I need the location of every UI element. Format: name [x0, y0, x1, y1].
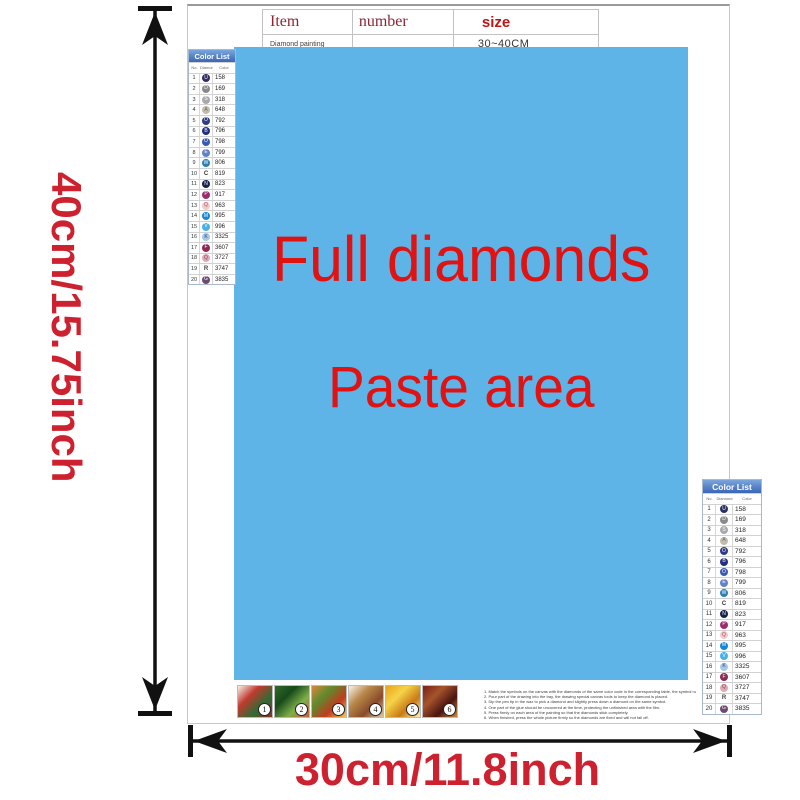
- thumbnail-image: 5: [385, 685, 421, 718]
- diamond-symbol-icon: U: [720, 505, 728, 513]
- diamond-symbol-icon: S: [202, 96, 210, 104]
- diamond-symbol-cell: Q: [716, 683, 733, 693]
- diamond-symbol-cell: Q: [200, 254, 213, 264]
- color-number: 4: [703, 536, 716, 546]
- color-number: 14: [189, 211, 200, 221]
- diamond-symbol-icon: B: [720, 558, 728, 566]
- color-list-row: 6B796: [703, 556, 761, 567]
- diamond-symbol-icon: Q: [202, 254, 210, 262]
- color-list-row: 16K3325: [703, 661, 761, 672]
- thumbnail-number-badge: 3: [332, 703, 345, 716]
- color-list-title: Color List: [703, 480, 761, 493]
- color-number: 12: [703, 620, 716, 630]
- color-list-row: 8E799: [703, 577, 761, 588]
- color-list-row: 3S318: [703, 525, 761, 536]
- diamond-symbol-icon: C: [720, 600, 728, 608]
- diamond-symbol-cell: D: [200, 84, 213, 94]
- color-code: 3607: [213, 245, 235, 251]
- diamond-symbol-icon: P: [720, 621, 728, 629]
- diamond-symbol-icon: A: [720, 537, 728, 545]
- diamond-symbol-icon: E: [202, 149, 210, 157]
- color-number: 9: [189, 158, 200, 168]
- diamond-symbol-cell: V: [200, 222, 213, 232]
- diamond-symbol-icon: M: [202, 212, 210, 220]
- thumbnail-image: 1: [237, 685, 273, 718]
- color-code: 819: [213, 171, 235, 177]
- color-list-row: 20G3835: [189, 274, 235, 285]
- color-number: 11: [189, 180, 200, 190]
- diamond-symbol-icon: D: [202, 85, 210, 93]
- diamond-symbol-cell: W: [716, 589, 733, 599]
- diamond-symbol-icon: R: [202, 265, 210, 273]
- color-number: 19: [703, 694, 716, 704]
- instruction-line: 6. When finished, press the whole pictur…: [484, 715, 696, 720]
- thumbnail-number-badge: 1: [258, 703, 271, 716]
- color-code: 796: [213, 128, 235, 134]
- color-list-header-row: No.DiamondColor: [703, 493, 761, 504]
- color-code: 799: [213, 150, 235, 156]
- color-number: 2: [703, 515, 716, 525]
- diamond-symbol-icon: D: [720, 516, 728, 524]
- color-code: 798: [733, 569, 761, 576]
- color-column-header: Color: [213, 65, 235, 70]
- color-code: 648: [733, 537, 761, 544]
- diamond-symbol-cell: M: [200, 211, 213, 221]
- diamond-symbol-cell: G: [716, 704, 733, 714]
- color-code: 3747: [733, 695, 761, 702]
- color-list-row: 15V996: [703, 651, 761, 662]
- diamond-symbol-cell: K: [716, 662, 733, 672]
- color-list-row: 7O798: [189, 136, 235, 147]
- color-code: 792: [213, 118, 235, 124]
- diamond-symbol-icon: G: [202, 276, 210, 284]
- color-code: 798: [213, 139, 235, 145]
- diamond-symbol-icon: O: [202, 117, 210, 125]
- diamond-symbol-icon: B: [202, 127, 210, 135]
- diamond-symbol-cell: R: [200, 264, 213, 274]
- diamond-symbol-icon: F: [720, 673, 728, 681]
- color-list-row: 4A648: [189, 104, 235, 115]
- diamond-symbol-cell: Q: [716, 631, 733, 641]
- diamond-symbol-cell: S: [716, 526, 733, 536]
- color-list-row: 18Q3727: [703, 682, 761, 693]
- color-list-left: Color ListNo.DiamondColor1U1582D1693S318…: [188, 49, 236, 285]
- color-code: 169: [733, 516, 761, 523]
- color-code: 158: [213, 75, 235, 81]
- color-list-row: 11N823: [703, 609, 761, 620]
- diamond-symbol-icon: W: [720, 589, 728, 597]
- vertical-dimension-arrow: [137, 5, 173, 717]
- diamond-symbol-cell: D: [716, 515, 733, 525]
- color-code: 158: [733, 506, 761, 513]
- color-list-header-row: No.DiamondColor: [189, 62, 235, 73]
- color-code: 169: [213, 86, 235, 92]
- color-number: 17: [189, 243, 200, 253]
- color-number: 2: [189, 84, 200, 94]
- diamond-symbol-icon: N: [202, 180, 210, 188]
- color-number: 8: [703, 578, 716, 588]
- color-list-row: 12P917: [703, 619, 761, 630]
- color-code: 806: [733, 590, 761, 597]
- diamond-symbol-cell: O: [200, 116, 213, 126]
- color-code: 819: [733, 600, 761, 607]
- color-list-row: 9W806: [189, 157, 235, 168]
- color-number: 10: [703, 599, 716, 609]
- diamond-symbol-cell: P: [200, 190, 213, 200]
- color-number: 5: [189, 116, 200, 126]
- item-header-cell: Item: [263, 10, 353, 35]
- thumbnail-image: 3: [311, 685, 347, 718]
- color-number: 5: [703, 547, 716, 557]
- no-column-header: No.: [189, 65, 200, 70]
- color-code: 823: [213, 181, 235, 187]
- color-number: 15: [189, 222, 200, 232]
- color-code: 792: [733, 548, 761, 555]
- color-code: 648: [213, 107, 235, 113]
- diamond-symbol-cell: O: [716, 568, 733, 578]
- color-number: 16: [703, 662, 716, 672]
- diamond-symbol-cell: F: [200, 243, 213, 253]
- color-number: 6: [703, 557, 716, 567]
- size-header-cell: size: [453, 10, 598, 35]
- diamond-symbol-cell: K: [200, 233, 213, 243]
- color-number: 18: [703, 683, 716, 693]
- color-code: 3325: [733, 663, 761, 670]
- color-list-row: 5O792: [703, 546, 761, 557]
- thumbnail-number-badge: 5: [406, 703, 419, 716]
- color-list-row: 11N823: [189, 179, 235, 190]
- color-column-header: Color: [733, 496, 761, 501]
- diamond-symbol-icon: R: [720, 694, 728, 702]
- diamond-symbol-icon: V: [720, 652, 728, 660]
- color-list-row: 14M995: [703, 640, 761, 651]
- paste-area-subtitle: Paste area: [328, 354, 594, 421]
- thumbnail-number-badge: 6: [443, 703, 456, 716]
- diamond-symbol-icon: G: [720, 705, 728, 713]
- diamond-symbol-icon: F: [202, 244, 210, 252]
- width-dimension-label: 30cm/11.8inch: [250, 744, 645, 796]
- color-code: 806: [213, 160, 235, 166]
- diamond-symbol-cell: E: [200, 148, 213, 158]
- color-list-row: 13Q963: [703, 630, 761, 641]
- diamond-symbol-cell: G: [200, 275, 213, 285]
- color-code: 963: [733, 632, 761, 639]
- color-list-right: Color ListNo.DiamondColor1U1582D1693S318…: [702, 479, 762, 715]
- color-number: 12: [189, 190, 200, 200]
- number-header-cell: number: [352, 10, 453, 35]
- diamond-symbol-icon: N: [720, 610, 728, 618]
- color-code: 995: [213, 213, 235, 219]
- color-list-row: 6B796: [189, 126, 235, 137]
- diamond-symbol-cell: A: [716, 536, 733, 546]
- diamond-column-header: Diamond: [200, 65, 213, 70]
- color-list-row: 16K3325: [189, 232, 235, 243]
- instructions-text: 1. Match the symbols on the canvas with …: [484, 689, 696, 720]
- color-list-row: 19R3747: [189, 263, 235, 274]
- color-number: 17: [703, 673, 716, 683]
- diamond-symbol-cell: P: [716, 620, 733, 630]
- instruction-line: 3. Dip the pen tip in the wax to pick a …: [484, 699, 696, 704]
- diamond-symbol-icon: Q: [720, 631, 728, 639]
- diamond-symbol-cell: A: [200, 105, 213, 115]
- color-code: 799: [733, 579, 761, 586]
- thumbnail-image: 2: [274, 685, 310, 718]
- diamond-symbol-cell: U: [200, 74, 213, 84]
- diamond-symbol-icon: U: [202, 74, 210, 82]
- color-number: 15: [703, 652, 716, 662]
- diamond-symbol-icon: V: [202, 223, 210, 231]
- color-code: 3607: [733, 674, 761, 681]
- no-column-header: No.: [703, 496, 716, 501]
- diamond-symbol-cell: W: [200, 158, 213, 168]
- diamond-symbol-icon: C: [202, 170, 210, 178]
- color-list-row: 10C819: [703, 598, 761, 609]
- color-number: 13: [189, 201, 200, 211]
- color-code: 3325: [213, 234, 235, 240]
- diamond-symbol-cell: O: [716, 547, 733, 557]
- color-list-row: 19R3747: [703, 693, 761, 704]
- color-code: 963: [213, 203, 235, 209]
- color-number: 11: [703, 610, 716, 620]
- color-code: 318: [213, 97, 235, 103]
- color-list-row: 14M995: [189, 210, 235, 221]
- diamond-symbol-cell: N: [716, 610, 733, 620]
- diamond-symbol-icon: E: [720, 579, 728, 587]
- color-list-row: 15V996: [189, 221, 235, 232]
- color-code: 3835: [213, 277, 235, 283]
- diamond-symbol-cell: B: [716, 557, 733, 567]
- diamond-symbol-cell: C: [200, 169, 213, 179]
- diamond-symbol-icon: Q: [202, 202, 210, 210]
- color-code: 996: [213, 224, 235, 230]
- color-number: 4: [189, 105, 200, 115]
- color-code: 823: [733, 611, 761, 618]
- color-number: 1: [703, 505, 716, 515]
- color-list-row: 18Q3727: [189, 253, 235, 264]
- color-list-row: 2D169: [189, 83, 235, 94]
- color-list-row: 9W806: [703, 588, 761, 599]
- color-list-title: Color List: [189, 50, 235, 62]
- diamond-symbol-cell: E: [716, 578, 733, 588]
- color-number: 18: [189, 254, 200, 264]
- color-list-row: 20G3835: [703, 703, 761, 714]
- color-number: 9: [703, 589, 716, 599]
- thumbnail-number-badge: 4: [369, 703, 382, 716]
- color-number: 1: [189, 74, 200, 84]
- thumbnail-image: 4: [348, 685, 384, 718]
- color-code: 996: [733, 653, 761, 660]
- footer-thumbnails: 123456: [237, 685, 458, 718]
- color-number: 20: [703, 704, 716, 714]
- color-list-row: 1U158: [703, 504, 761, 515]
- diamond-symbol-cell: O: [200, 137, 213, 147]
- color-number: 20: [189, 275, 200, 285]
- thumbnail-image: 6: [422, 685, 458, 718]
- diamond-symbol-icon: A: [202, 106, 210, 114]
- diamond-symbol-icon: P: [202, 191, 210, 199]
- diamond-symbol-cell: V: [716, 652, 733, 662]
- diamond-symbol-icon: K: [202, 233, 210, 241]
- thumbnail-number-badge: 2: [295, 703, 308, 716]
- color-list-row: 17F3607: [189, 242, 235, 253]
- diamond-symbol-cell: Q: [200, 201, 213, 211]
- color-list-row: 3S318: [189, 94, 235, 105]
- height-dimension-label: 40cm/15.75inch: [42, 172, 90, 572]
- color-number: 6: [189, 127, 200, 137]
- diamond-symbol-cell: U: [716, 505, 733, 515]
- diamond-symbol-icon: Q: [720, 684, 728, 692]
- color-code: 917: [213, 192, 235, 198]
- diamond-symbol-cell: M: [716, 641, 733, 651]
- color-code: 796: [733, 558, 761, 565]
- color-list-row: 10C819: [189, 168, 235, 179]
- color-number: 10: [189, 169, 200, 179]
- color-list-row: 17F3607: [703, 672, 761, 683]
- color-list-row: 1U158: [189, 73, 235, 84]
- color-code: 318: [733, 527, 761, 534]
- diamond-symbol-icon: W: [202, 159, 210, 167]
- color-list-row: 7O798: [703, 567, 761, 578]
- color-list-row: 13Q963: [189, 200, 235, 211]
- diamond-symbol-icon: O: [202, 138, 210, 146]
- color-number: 7: [703, 568, 716, 578]
- color-number: 3: [703, 526, 716, 536]
- diamond-symbol-cell: F: [716, 673, 733, 683]
- diamond-symbol-cell: C: [716, 599, 733, 609]
- color-code: 995: [733, 642, 761, 649]
- color-list-row: 5O792: [189, 115, 235, 126]
- diamond-symbol-cell: N: [200, 180, 213, 190]
- color-number: 8: [189, 148, 200, 158]
- diamond-symbol-icon: K: [720, 663, 728, 671]
- color-code: 3835: [733, 705, 761, 712]
- diamond-painting-canvas: Item number size Diamond painting 30~40C…: [187, 4, 730, 724]
- color-list-row: 8E799: [189, 147, 235, 158]
- color-number: 16: [189, 233, 200, 243]
- color-number: 3: [189, 95, 200, 105]
- diamond-column-header: Diamond: [716, 496, 733, 501]
- paste-area: Full diamonds Paste area: [234, 47, 688, 680]
- color-code: 3727: [213, 255, 235, 261]
- color-list-row: 4A648: [703, 535, 761, 546]
- color-list-row: 12P917: [189, 189, 235, 200]
- diamond-symbol-icon: S: [720, 526, 728, 534]
- color-number: 14: [703, 641, 716, 651]
- diamond-symbol-icon: O: [720, 547, 728, 555]
- color-code: 3747: [213, 266, 235, 272]
- diamond-symbol-icon: O: [720, 568, 728, 576]
- color-code: 917: [733, 621, 761, 628]
- diamond-symbol-cell: B: [200, 127, 213, 137]
- color-list-row: 2D169: [703, 514, 761, 525]
- diamond-symbol-icon: M: [720, 642, 728, 650]
- color-number: 13: [703, 631, 716, 641]
- color-number: 19: [189, 264, 200, 274]
- diamond-symbol-cell: S: [200, 95, 213, 105]
- paste-area-title: Full diamonds: [272, 222, 650, 296]
- color-number: 7: [189, 137, 200, 147]
- color-code: 3727: [733, 684, 761, 691]
- diamond-symbol-cell: R: [716, 694, 733, 704]
